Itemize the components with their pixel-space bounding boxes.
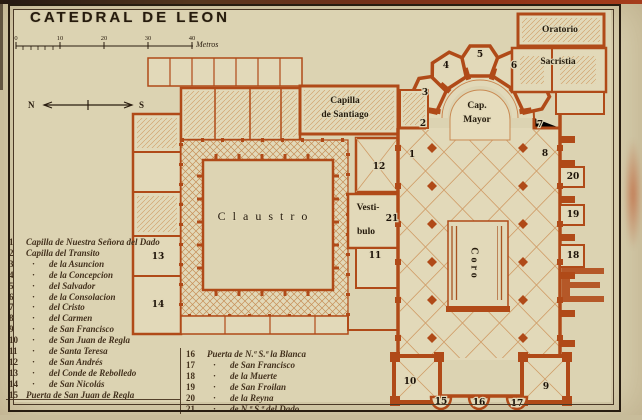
photo-edge-left [0,0,3,90]
photo-edge-top [0,0,642,4]
scanned-map-page: Claustro Capilla de Santiago Vesti- bulo [0,0,642,420]
photo-smudge [624,138,642,250]
photo-edge-bottom [0,415,642,420]
map-frame-inner [13,9,614,405]
